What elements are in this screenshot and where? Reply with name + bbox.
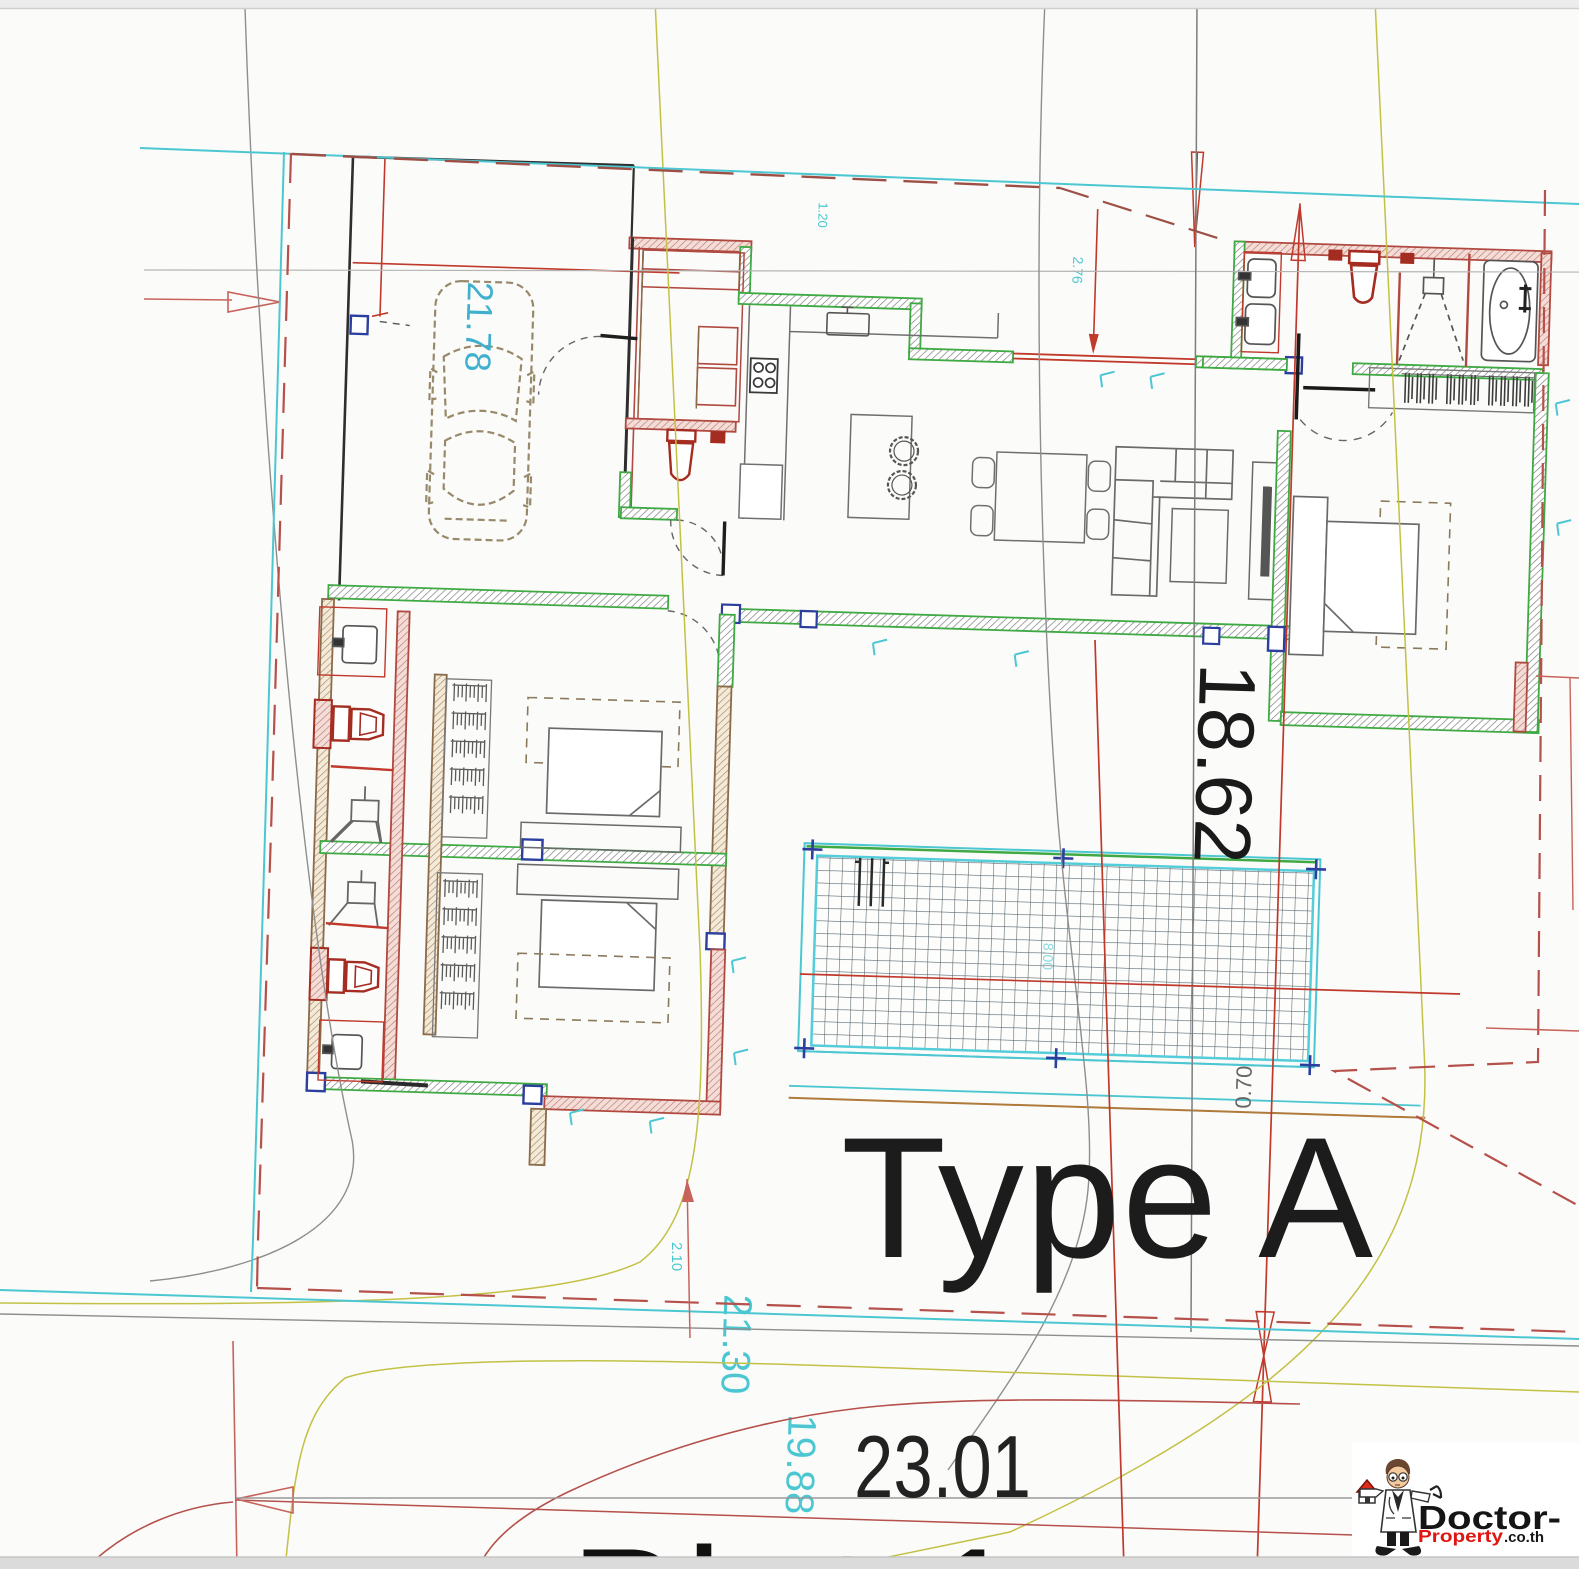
svg-text:.co.th: .co.th: [1504, 1529, 1544, 1546]
svg-text:18.62: 18.62: [1177, 662, 1272, 865]
svg-text:23.01: 23.01: [854, 1417, 1031, 1516]
svg-text:19.88: 19.88: [777, 1414, 824, 1515]
svg-text:Property: Property: [1418, 1526, 1503, 1546]
svg-text:2.76: 2.76: [1069, 256, 1086, 284]
svg-text:8.00: 8.00: [1040, 943, 1057, 971]
svg-text:1.20: 1.20: [815, 202, 831, 228]
svg-text:2.10: 2.10: [668, 1242, 685, 1271]
svg-text:21.78: 21.78: [457, 281, 501, 372]
svg-text:21.30: 21.30: [712, 1294, 759, 1395]
svg-text:Type A: Type A: [841, 1102, 1373, 1294]
